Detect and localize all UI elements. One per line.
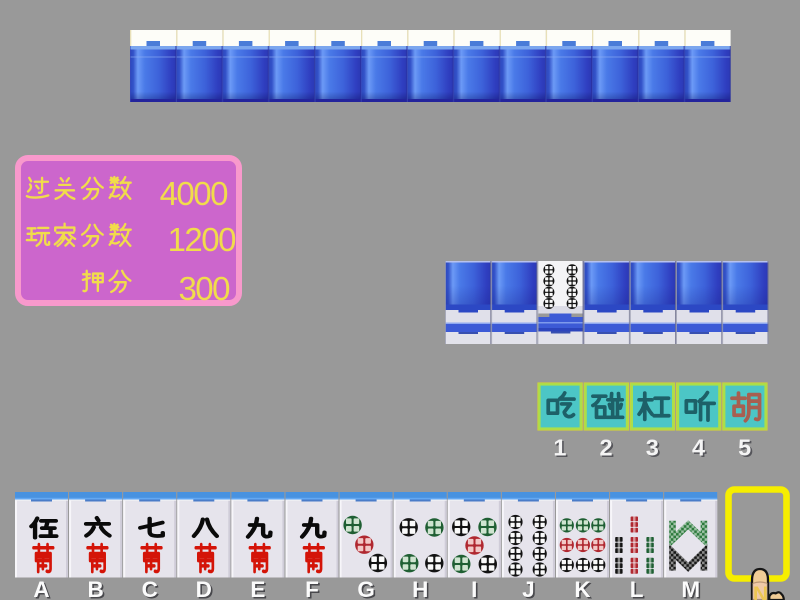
svg-text:N: N: [753, 583, 768, 600]
svg-text:G: G: [357, 577, 375, 600]
svg-text:L: L: [630, 577, 644, 600]
svg-text:B: B: [87, 577, 103, 600]
svg-text:H: H: [412, 577, 428, 600]
svg-text:5: 5: [738, 435, 751, 461]
svg-text:4: 4: [692, 435, 705, 461]
svg-text:D: D: [196, 577, 212, 600]
svg-text:K: K: [574, 577, 591, 600]
svg-text:300: 300: [178, 270, 230, 307]
svg-text:2: 2: [600, 435, 613, 461]
svg-text:1200: 1200: [168, 221, 237, 258]
svg-text:4000: 4000: [160, 175, 229, 212]
svg-text:C: C: [142, 577, 158, 600]
svg-text:F: F: [305, 577, 319, 600]
svg-text:I: I: [471, 577, 477, 600]
svg-text:3: 3: [646, 435, 659, 461]
svg-text:J: J: [522, 577, 535, 600]
svg-text:A: A: [33, 577, 49, 600]
svg-text:M: M: [681, 577, 700, 600]
svg-text:E: E: [250, 577, 265, 600]
svg-text:1: 1: [553, 435, 566, 461]
